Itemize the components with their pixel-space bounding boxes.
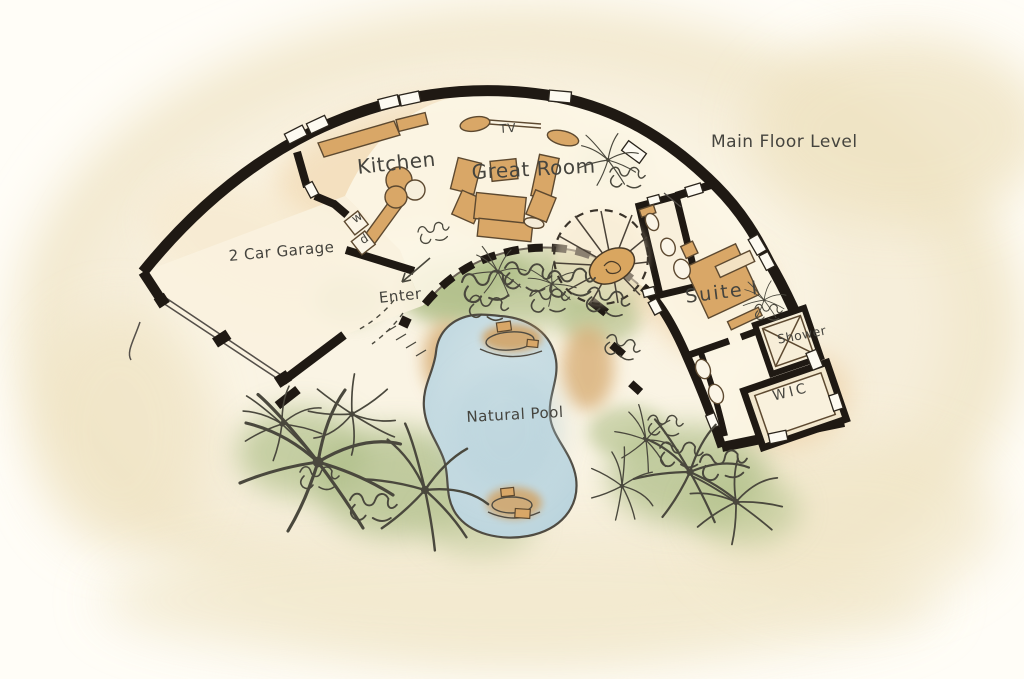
plan-title: Main Floor Level bbox=[711, 132, 858, 152]
spiral-stair bbox=[554, 210, 648, 304]
annotation-tv: TV bbox=[499, 121, 516, 136]
dining-chair bbox=[385, 186, 407, 208]
floor-plan-drawing bbox=[0, 0, 1024, 679]
floor-plan-page: Main Floor Level Kitchen Great Room 2 Ca… bbox=[0, 0, 1024, 679]
dining-chair bbox=[405, 180, 425, 200]
